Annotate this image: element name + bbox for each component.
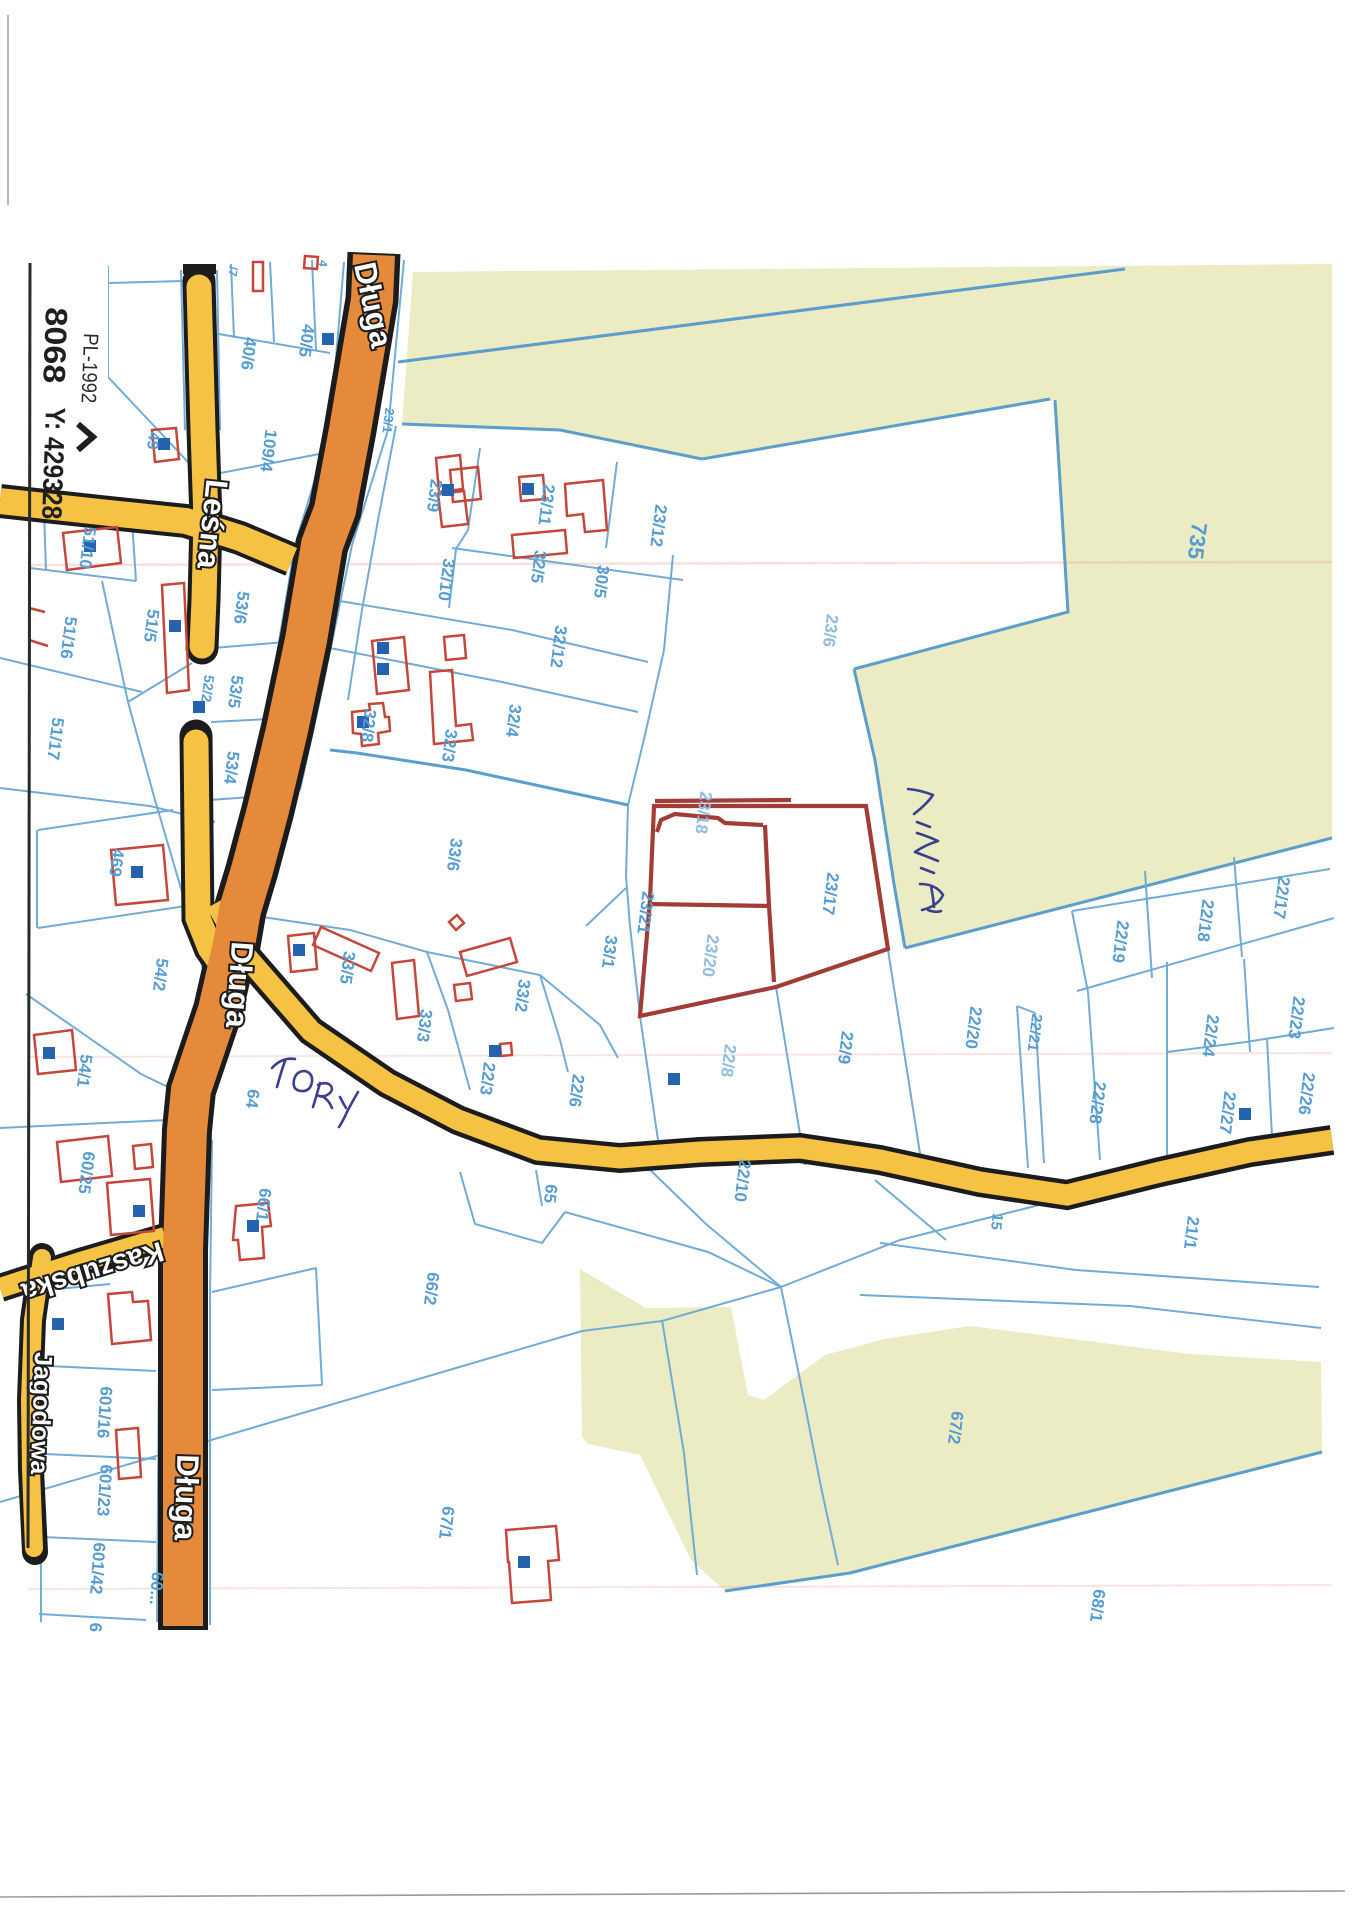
svg-text:Długa: Długa [219, 941, 260, 1030]
svg-text:53/5: 53/5 [224, 674, 247, 709]
svg-text:22/3: 22/3 [476, 1061, 499, 1096]
svg-text:33/2: 33/2 [511, 978, 534, 1013]
svg-text:40/6: 40/6 [237, 336, 260, 371]
svg-text:469: 469 [105, 847, 127, 877]
svg-text:Y: 429328: Y: 429328 [36, 407, 71, 520]
svg-text:22/6: 22/6 [565, 1073, 588, 1108]
svg-text:15: 15 [987, 1212, 1006, 1231]
svg-text:53/4: 53/4 [220, 750, 243, 786]
svg-text:23/6: 23/6 [819, 613, 842, 648]
svg-text:33/5: 33/5 [336, 950, 359, 985]
svg-text:60...: 60... [146, 1571, 167, 1605]
svg-text:40/5: 40/5 [295, 323, 318, 358]
svg-text:Długa: Długa [167, 1454, 205, 1542]
svg-text:67/1: 67/1 [435, 1505, 458, 1540]
svg-text:735: 735 [1183, 521, 1212, 560]
svg-text:601/42: 601/42 [86, 1542, 109, 1595]
svg-text:22/8: 22/8 [717, 1043, 740, 1078]
svg-text:/7: /7 [225, 266, 240, 278]
svg-text:67/2: 67/2 [944, 1410, 967, 1445]
svg-text:32/5: 32/5 [527, 549, 550, 584]
svg-text:66/1: 66/1 [252, 1187, 275, 1222]
svg-text:22/9: 22/9 [834, 1030, 857, 1065]
svg-text:64: 64 [242, 1088, 263, 1110]
svg-text:8068: 8068 [36, 307, 74, 384]
svg-text:54/2: 54/2 [149, 957, 172, 992]
svg-text:23/1: 23/1 [379, 407, 397, 434]
svg-text:23/9: 23/9 [423, 478, 446, 513]
svg-text:52/2: 52/2 [198, 674, 217, 703]
svg-text:601/16: 601/16 [93, 1386, 116, 1439]
svg-text:30/5: 30/5 [590, 564, 613, 599]
svg-text:601/23: 601/23 [93, 1464, 116, 1517]
svg-text:66/2: 66/2 [420, 1271, 443, 1306]
svg-text:49: 49 [143, 431, 162, 451]
svg-text:65: 65 [540, 1183, 561, 1204]
svg-text:54/1: 54/1 [73, 1053, 96, 1088]
svg-text:51/5: 51/5 [140, 608, 163, 643]
svg-text:33/3: 33/3 [413, 1008, 436, 1043]
svg-text:PL-1992: PL-1992 [77, 333, 102, 404]
svg-text:32/8: 32/8 [357, 708, 380, 743]
svg-text:6: 6 [86, 1622, 106, 1633]
svg-text:33/1: 33/1 [598, 934, 621, 969]
svg-text:32/4: 32/4 [502, 703, 525, 739]
svg-text:53/6: 53/6 [230, 590, 253, 625]
svg-text:33/6: 33/6 [443, 837, 466, 872]
svg-text:32/3: 32/3 [438, 728, 461, 763]
svg-text:21/1: 21/1 [1180, 1215, 1203, 1250]
svg-text:68/1: 68/1 [1086, 1588, 1109, 1623]
